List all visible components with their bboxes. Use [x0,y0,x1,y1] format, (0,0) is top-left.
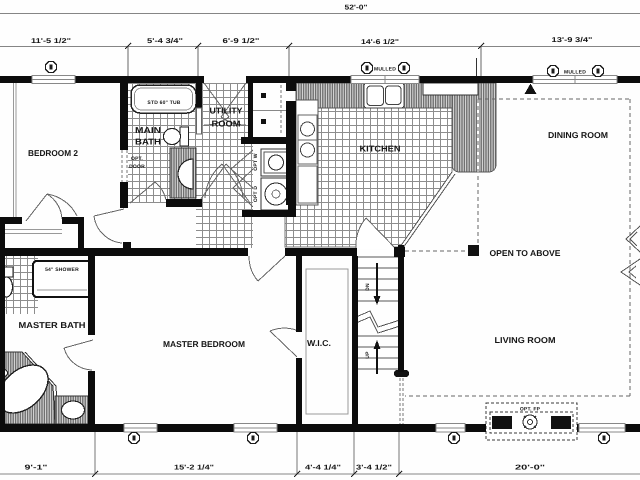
svg-text:OPT W: OPT W [253,153,259,170]
svg-text:UTILITY: UTILITY [210,106,243,116]
svg-text:OPT. FP: OPT. FP [520,407,541,413]
svg-text:BEDROOM 2: BEDROOM 2 [28,148,78,158]
svg-text:20'-0": 20'-0" [515,465,545,472]
svg-text:11'-5 1/2": 11'-5 1/2" [31,37,71,45]
svg-text:OPT.: OPT. [131,156,143,162]
svg-text:DINING ROOM: DINING ROOM [548,130,608,140]
svg-text:52'-0": 52'-0" [345,5,368,12]
svg-text:OPEN TO ABOVE: OPEN TO ABOVE [490,248,561,258]
svg-text:MAIN: MAIN [135,125,161,135]
svg-text:MULLED: MULLED [374,67,396,73]
svg-text:BATH: BATH [135,137,161,147]
svg-text:KITCHEN: KITCHEN [360,144,401,154]
svg-text:13'-9 3/4": 13'-9 3/4" [552,36,593,44]
svg-text:UP: UP [365,351,371,359]
svg-text:DN: DN [365,283,371,291]
svg-text:ROOM: ROOM [212,119,241,129]
svg-text:14'-6 1/2": 14'-6 1/2" [361,38,399,46]
svg-text:5'-4 3/4": 5'-4 3/4" [147,37,183,45]
svg-text:STD 60" TUB: STD 60" TUB [147,100,180,106]
svg-text:OPT D: OPT D [253,186,259,202]
svg-text:9'-1": 9'-1" [25,465,48,472]
svg-text:6'-9 1/2": 6'-9 1/2" [223,37,260,45]
svg-text:15'-2 1/4": 15'-2 1/4" [174,464,214,472]
svg-text:LIVING ROOM: LIVING ROOM [495,335,556,345]
svg-text:MASTER BATH: MASTER BATH [19,320,86,330]
svg-text:MASTER BEDROOM: MASTER BEDROOM [163,339,245,349]
svg-text:W.I.C.: W.I.C. [307,338,331,348]
svg-text:DOOR: DOOR [129,164,145,170]
svg-text:3'-4 1/2": 3'-4 1/2" [356,464,392,472]
svg-text:4'-4 1/4": 4'-4 1/4" [305,464,341,472]
svg-text:54" SHOWER: 54" SHOWER [45,267,79,273]
svg-text:MULLED: MULLED [564,70,586,76]
